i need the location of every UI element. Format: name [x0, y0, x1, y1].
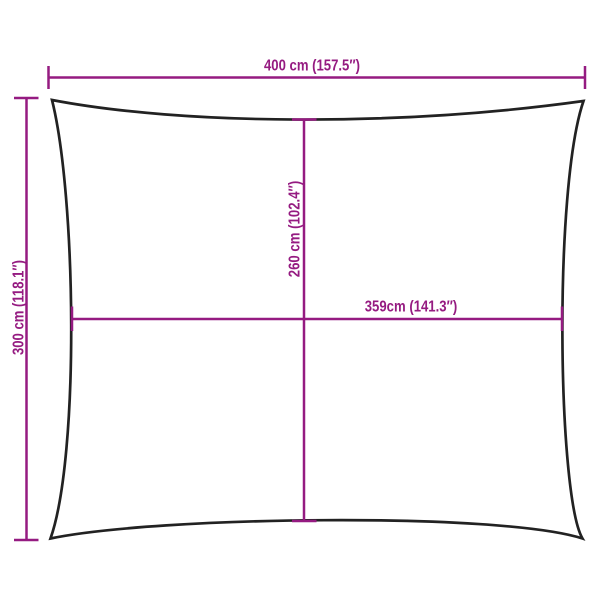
svg-text:400 cm (157.5″): 400 cm (157.5″) [264, 58, 360, 75]
svg-text:359cm (141.3″): 359cm (141.3″) [365, 299, 458, 316]
svg-text:260 cm (102.4″): 260 cm (102.4″) [287, 181, 304, 278]
svg-text:300 cm (118.1″): 300 cm (118.1″) [11, 260, 28, 355]
